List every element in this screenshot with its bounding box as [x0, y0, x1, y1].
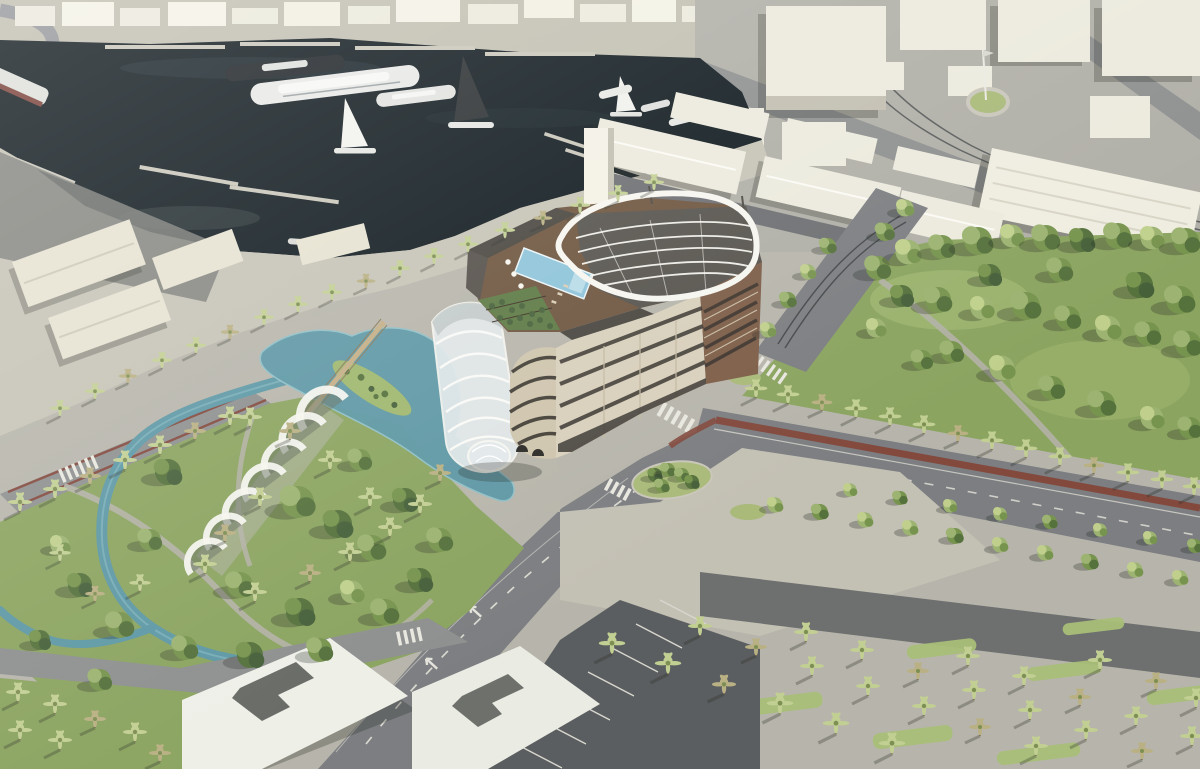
bloom-haze — [0, 0, 1200, 769]
rendered-scene — [0, 0, 1200, 769]
marina-development-rendering — [0, 0, 1200, 769]
